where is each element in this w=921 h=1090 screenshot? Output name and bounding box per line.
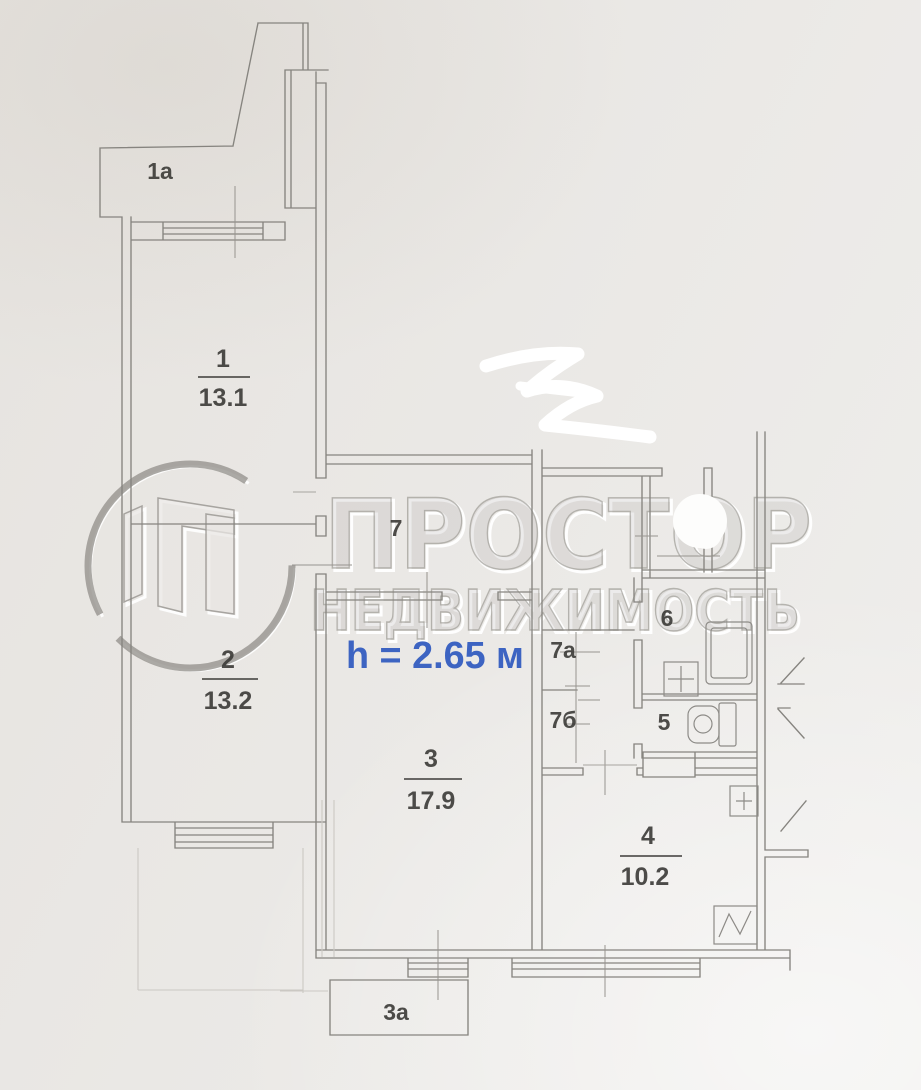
label-wc-5: 5 <box>658 709 671 735</box>
label-room-3-area: 17.9 <box>407 787 456 815</box>
label-room-3-number: 3 <box>424 745 438 773</box>
label-balcony-3a: 3а <box>383 999 409 1025</box>
floorplan-drawing: ПРОСТОР ПРОСТОР НЕДВИЖИМОСТЬ НЕДВИЖИМОСТ… <box>0 0 921 1090</box>
kitchen-sink-icon <box>730 786 758 816</box>
label-balcony-1a: 1а <box>147 158 173 184</box>
label-kitchen-4-area: 10.2 <box>621 863 670 891</box>
agency-logo-icon <box>88 464 295 671</box>
label-room-2-area: 13.2 <box>204 687 253 715</box>
label-room-1-area: 13.1 <box>199 384 248 412</box>
label-kitchen-4-number: 4 <box>641 822 655 850</box>
label-hall-7b: 7б <box>550 707 577 733</box>
label-hall-7a: 7а <box>550 637 576 663</box>
floorplan-scan: ПРОСТОР ПРОСТОР НЕДВИЖИМОСТЬ НЕДВИЖИМОСТ… <box>0 0 921 1090</box>
white-blob-2 <box>690 517 722 549</box>
ceiling-height-annotation: h = 2.65 м <box>346 635 524 677</box>
toilet-icon <box>688 703 736 746</box>
label-hall-7: 7 <box>390 515 403 541</box>
logo-ring <box>88 464 292 668</box>
faint-balcony-outline <box>138 800 334 993</box>
fixtures <box>664 622 758 944</box>
bath-sink-icon <box>664 662 698 696</box>
label-room-1-number: 1 <box>216 345 230 373</box>
stove-icon <box>714 906 757 944</box>
logo-mark <box>124 498 234 614</box>
label-bath-6: 6 <box>661 605 674 631</box>
label-room-2-number: 2 <box>221 646 235 674</box>
